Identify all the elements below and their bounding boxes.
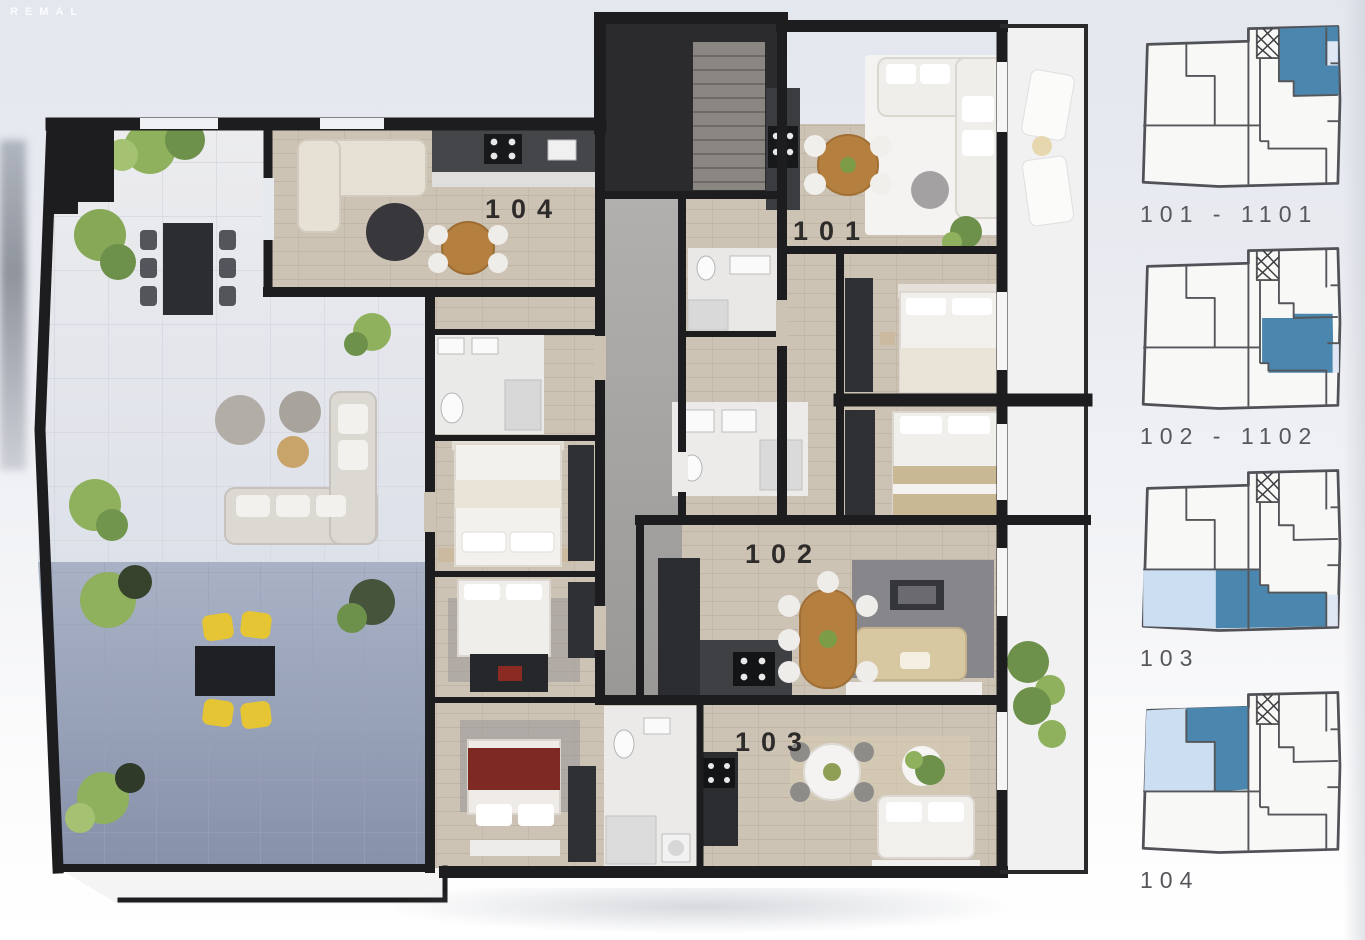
unit-card-label[interactable]: 104 (1124, 863, 1356, 894)
mini-floorplan-103 (1124, 460, 1356, 641)
highlighted-unit (1262, 314, 1334, 373)
highlighted-terrace (1143, 569, 1216, 628)
highlighted-balcony (1327, 41, 1338, 65)
mini-floorplan-101-1101 (1124, 16, 1356, 197)
unit-card-label[interactable]: 101 - 1101 (1124, 197, 1356, 228)
unit-label-101: 101 (793, 216, 871, 246)
unit-selector-sidebar: 101 - 1101 (1118, 0, 1365, 940)
unit-card-104[interactable]: 104 (1124, 682, 1356, 894)
unit-card-101-1101[interactable]: 101 - 1101 (1124, 16, 1356, 228)
unit-label-103: 103 (735, 727, 813, 757)
unit-card-label[interactable]: 102 - 1102 (1124, 419, 1356, 450)
floorplan-page: REMAL (0, 0, 1365, 940)
highlighted-balcony (1326, 595, 1338, 627)
mini-floorplan-104 (1124, 682, 1356, 863)
main-floorplan-render: 104 101 102 103 (0, 0, 1120, 940)
mini-floorplan-102-1102 (1124, 238, 1356, 419)
floor-shadow (380, 888, 1020, 934)
unit-label-102: 102 (745, 539, 823, 569)
unit-card-102-1102[interactable]: 102 - 1102 (1124, 238, 1356, 450)
unit-label-104: 104 (485, 194, 563, 224)
highlighted-balcony (1333, 343, 1339, 372)
unit-card-label[interactable]: 103 (1124, 641, 1356, 672)
unit-card-103[interactable]: 103 (1124, 460, 1356, 672)
